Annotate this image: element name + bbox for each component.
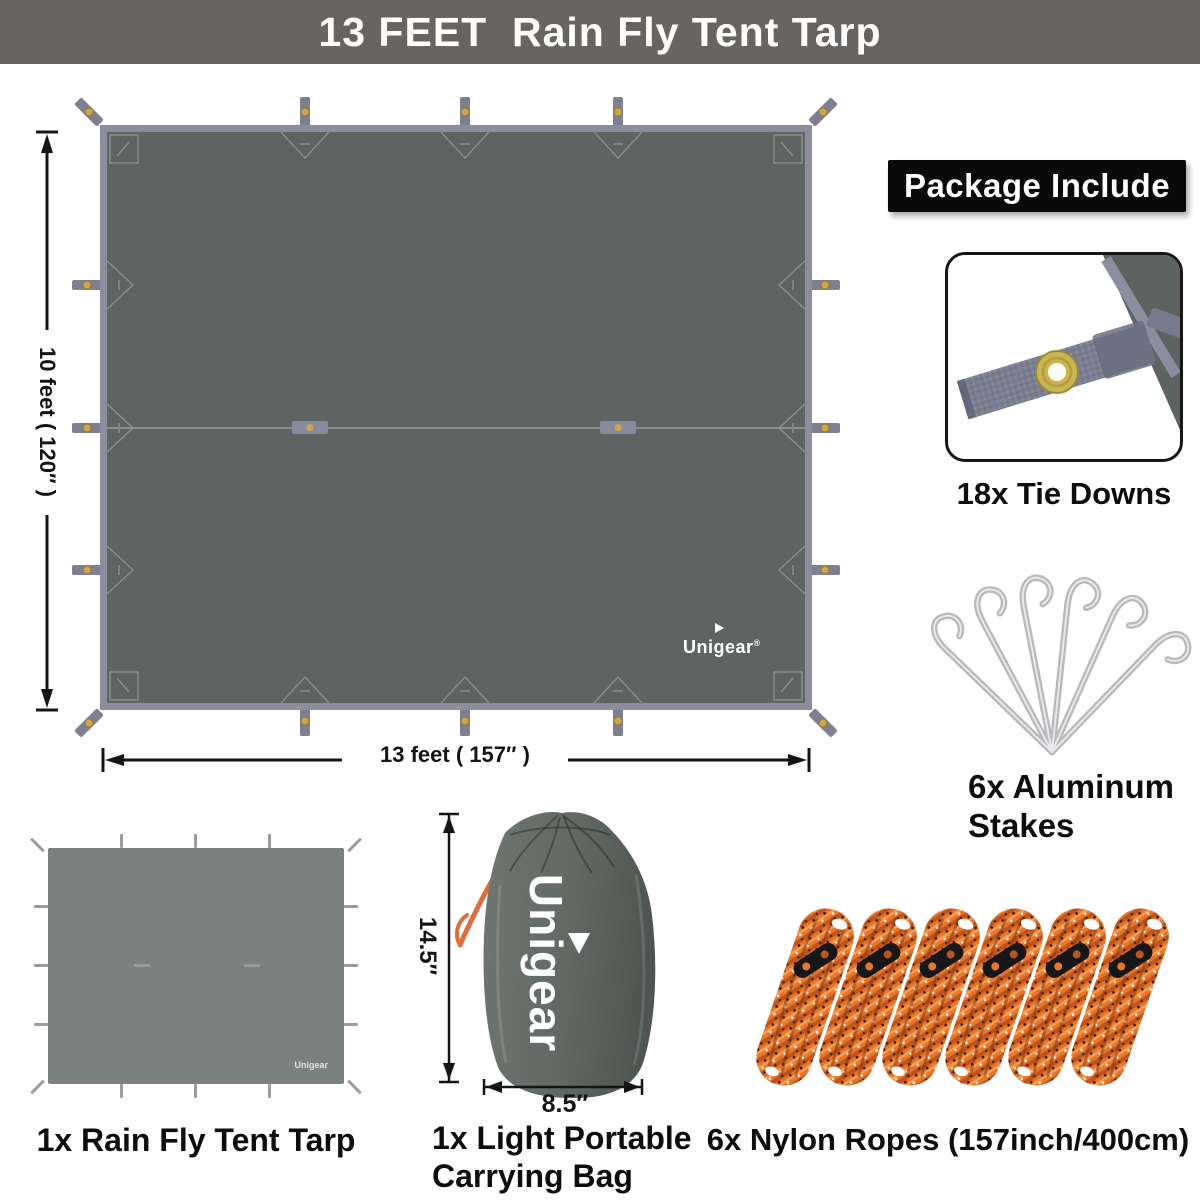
stakes-image xyxy=(900,552,1200,757)
tie-strap xyxy=(808,708,838,738)
brand-flag-icon xyxy=(715,623,724,633)
tie-strap xyxy=(613,706,623,736)
tie-strap xyxy=(74,97,104,127)
tie-strap xyxy=(810,280,840,290)
small-tarp-brand-logo: Unigear xyxy=(294,1060,328,1070)
ropes-image xyxy=(740,895,1200,1110)
small-tarp-image: Unigear xyxy=(48,848,344,1084)
ropes-label: 6x Nylon Ropes (157inch/400cm) xyxy=(698,1122,1198,1159)
package-include-heading: Package Include xyxy=(888,160,1186,212)
bag-label: 1x Light Portable Carrying Bag xyxy=(432,1120,742,1196)
tarp-image xyxy=(100,125,812,710)
tie-strap xyxy=(74,708,104,738)
width-dimension-label: 13 feet ( 157″ ) xyxy=(295,742,615,768)
title-banner: 13 FEET Rain Fly Tent Tarp xyxy=(0,0,1200,64)
tie-strap xyxy=(613,97,623,127)
tie-strap xyxy=(460,97,470,127)
product-infographic: 13 FEET Rain Fly Tent Tarp xyxy=(0,0,1200,1200)
tie-strap xyxy=(300,706,310,736)
height-dimension-label: 10 feet ( 120″ ) xyxy=(34,312,60,532)
tie-strap xyxy=(460,706,470,736)
bag-height-label: 14.5″ xyxy=(415,901,441,991)
tie-strap xyxy=(810,423,840,433)
tie-strap xyxy=(300,97,310,127)
tie-strap xyxy=(72,423,102,433)
tie-strap xyxy=(808,97,838,127)
carry-bag-image: Unigear xyxy=(430,805,680,1105)
tarp-brand-logo: Unigear® xyxy=(683,637,761,658)
bag-width-label: 8.5″ xyxy=(500,1090,630,1119)
grommet-icon xyxy=(1036,351,1078,393)
tie-downs-label: 18x Tie Downs xyxy=(944,476,1184,513)
tarp-detail-art xyxy=(107,132,805,703)
small-tarp-label: 1x Rain Fly Tent Tarp xyxy=(36,1122,356,1160)
stakes-label: 6x Aluminum Stakes xyxy=(968,768,1200,846)
tie-down-image xyxy=(945,252,1183,462)
tie-strap xyxy=(72,565,102,575)
bag-brand-logo: Unigear xyxy=(520,874,572,1052)
tie-strap xyxy=(72,280,102,290)
tie-strap xyxy=(810,565,840,575)
